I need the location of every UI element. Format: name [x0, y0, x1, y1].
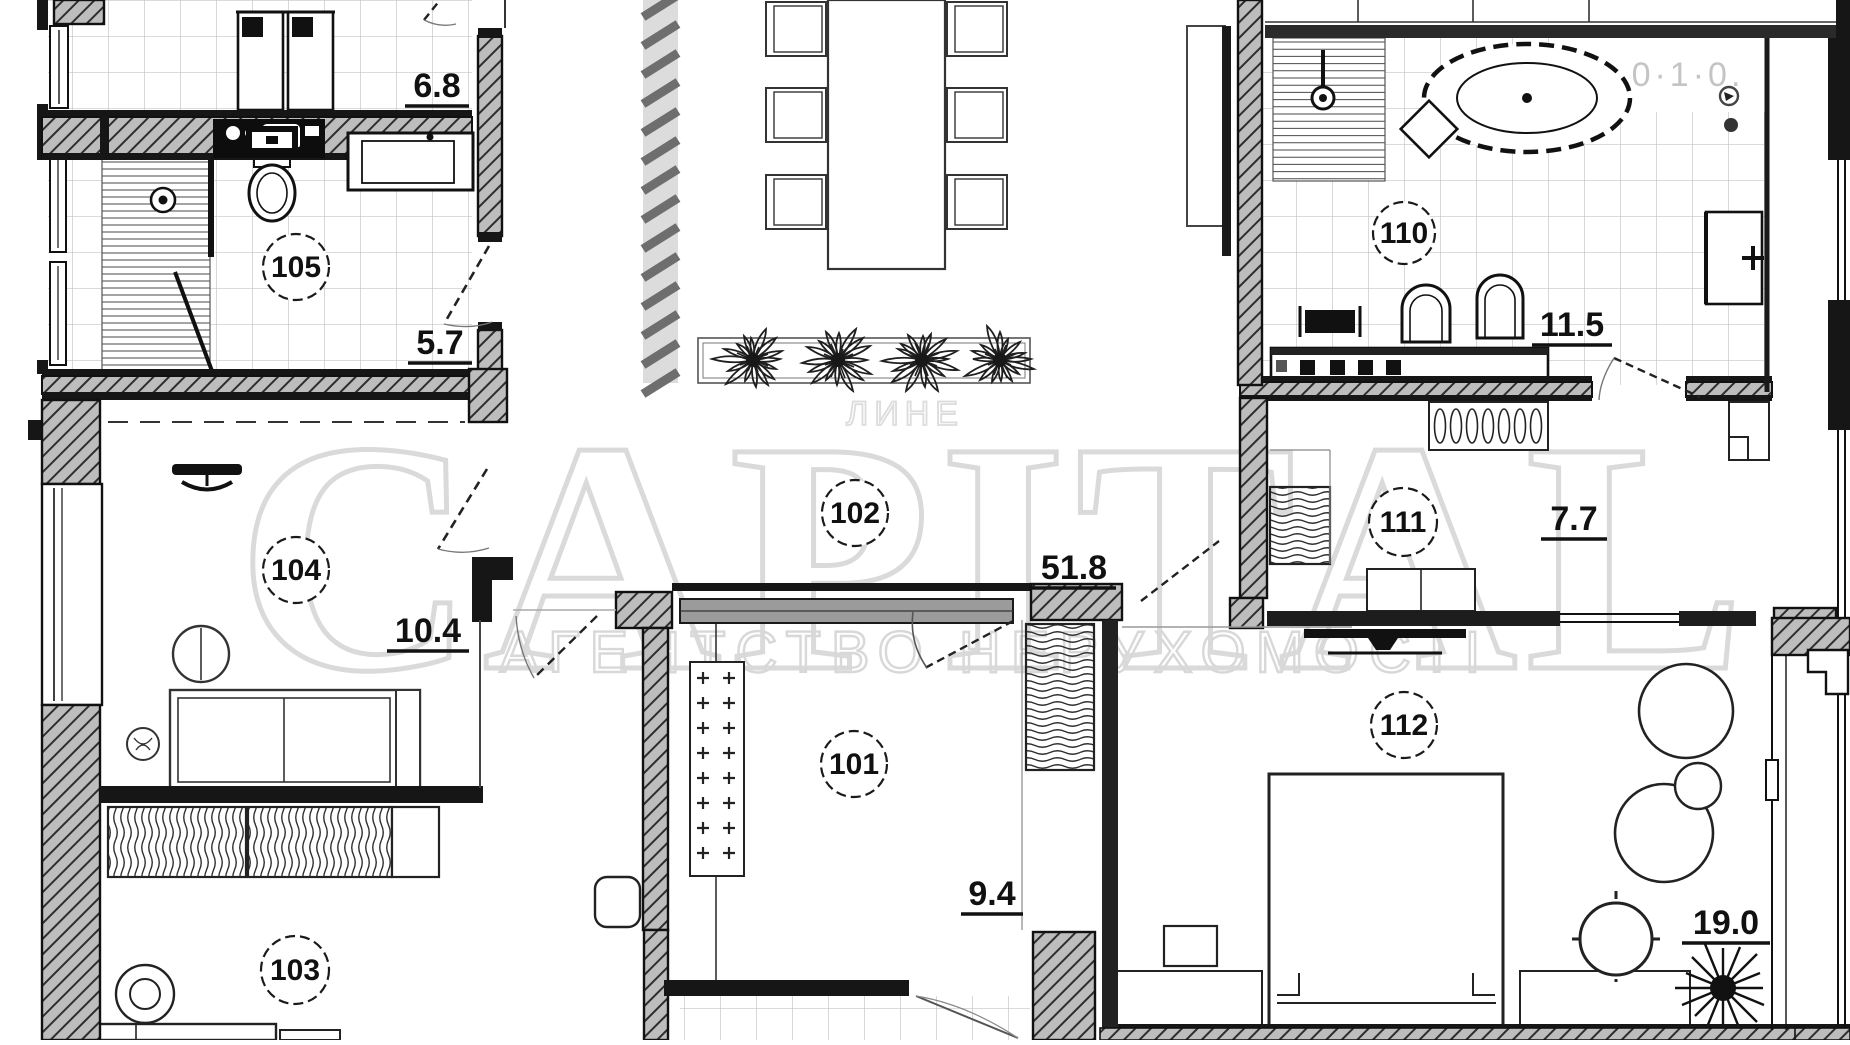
svg-text:7.7: 7.7: [1550, 500, 1597, 538]
svg-text:101: 101: [829, 748, 879, 781]
svg-text:9.4: 9.4: [968, 875, 1015, 913]
svg-text:11.5: 11.5: [1540, 306, 1604, 344]
svg-text:104: 104: [271, 554, 321, 587]
svg-text:51.8: 51.8: [1041, 549, 1107, 587]
svg-text:103: 103: [270, 954, 320, 987]
svg-text:19.0: 19.0: [1693, 904, 1759, 942]
svg-text:112: 112: [1380, 709, 1428, 742]
svg-text:105: 105: [271, 251, 321, 284]
svg-text:10.4: 10.4: [395, 612, 461, 650]
svg-text:ЛИНЕ: ЛИНЕ: [846, 395, 964, 433]
svg-text:110: 110: [1380, 217, 1428, 250]
svg-text:6.8: 6.8: [413, 67, 460, 105]
svg-text:5.7: 5.7: [416, 324, 463, 362]
svg-text:102: 102: [830, 497, 880, 530]
svg-text:111: 111: [1380, 506, 1427, 539]
